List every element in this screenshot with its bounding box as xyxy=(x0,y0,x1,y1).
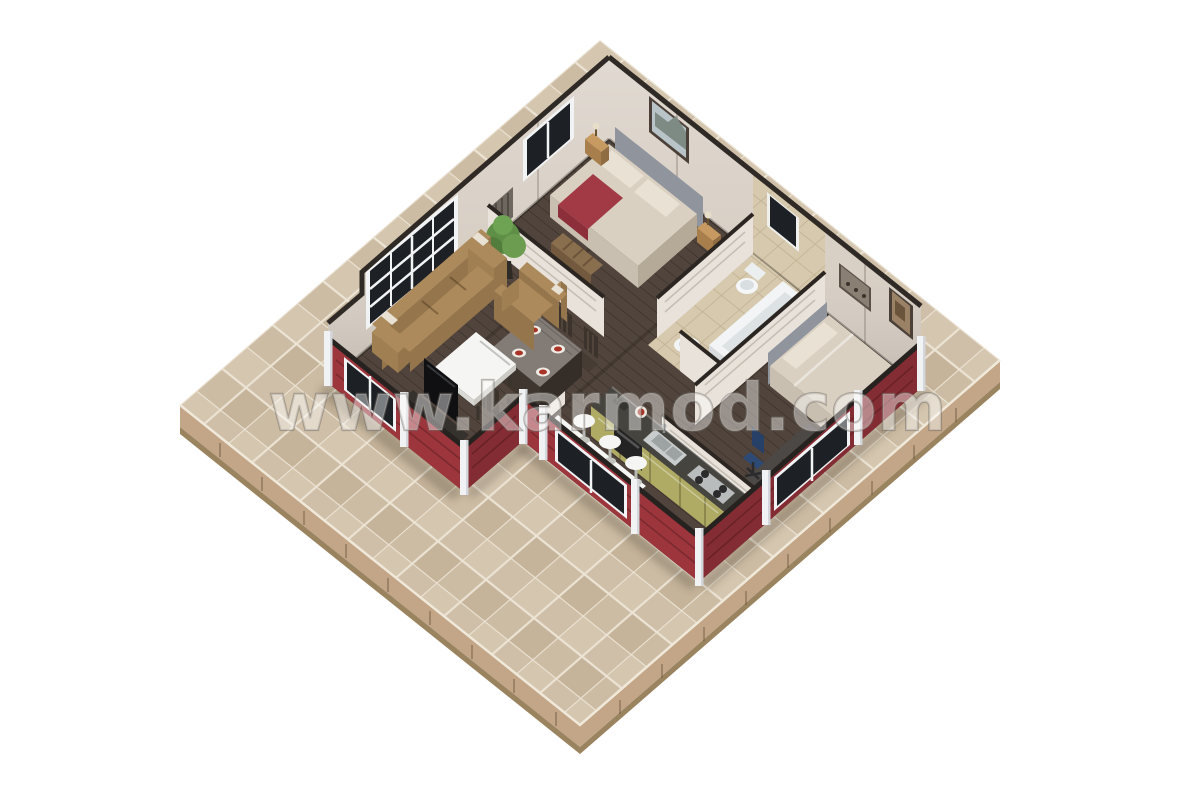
watermark: www.karmod.com xyxy=(269,369,947,446)
white-post xyxy=(762,470,771,525)
food-plate xyxy=(512,349,526,358)
floor-plan-render: www.karmod.com xyxy=(0,0,1200,800)
white-post xyxy=(695,528,704,586)
white-post xyxy=(460,440,469,495)
white-post xyxy=(631,479,640,534)
floor-plan-page: www.karmod.com xyxy=(0,0,1200,800)
food-plate xyxy=(551,345,565,354)
